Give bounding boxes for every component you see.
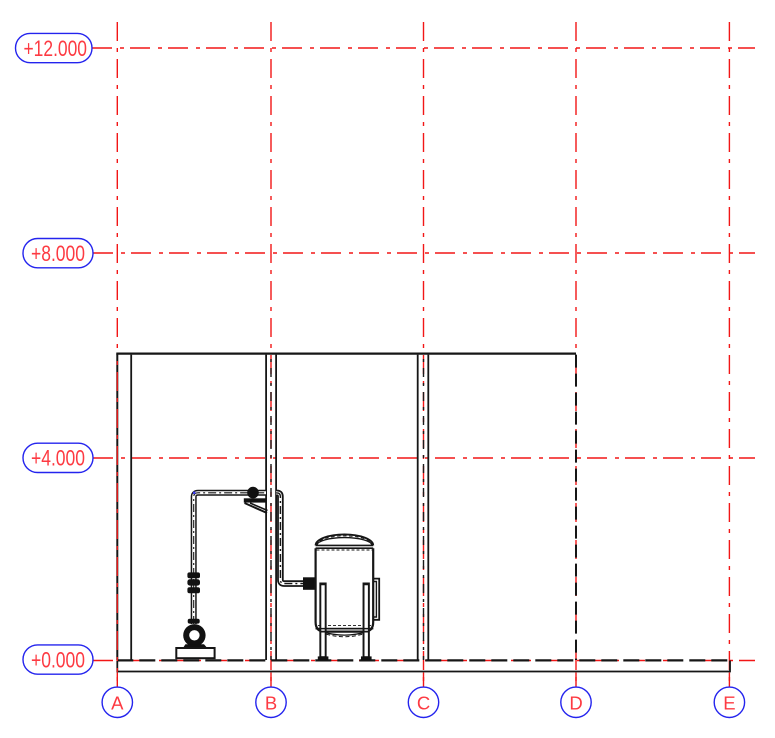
svg-text:A: A (111, 692, 124, 713)
svg-text:C: C (417, 692, 430, 713)
svg-text:+0.000: +0.000 (31, 647, 85, 672)
svg-text:D: D (569, 692, 582, 713)
svg-text:+8.000: +8.000 (31, 241, 85, 266)
svg-text:B: B (265, 692, 277, 713)
svg-text:+4.000: +4.000 (31, 446, 85, 471)
svg-text:E: E (723, 692, 735, 713)
svg-text:+12.000: +12.000 (24, 36, 88, 61)
